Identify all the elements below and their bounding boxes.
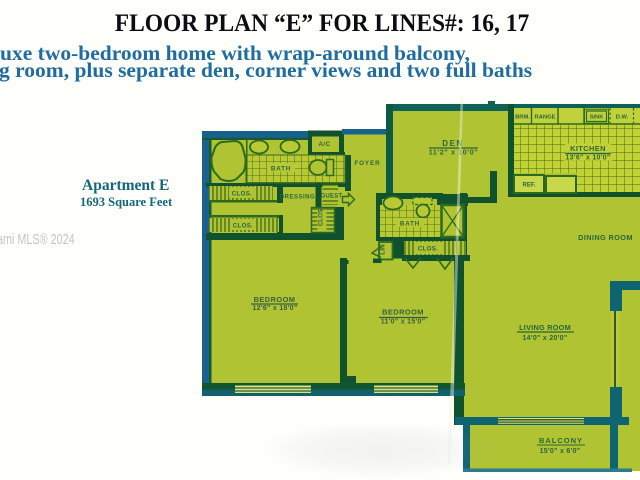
svg-text:13'6" x 10'0": 13'6" x 10'0"	[565, 155, 610, 162]
svg-text:BEDROOM: BEDROOM	[382, 308, 424, 317]
svg-text:A/C: A/C	[318, 141, 330, 148]
svg-text:BEDROOM: BEDROOM	[254, 295, 296, 304]
svg-text:DRESSING: DRESSING	[280, 195, 315, 201]
svg-text:FOYER: FOYER	[354, 160, 380, 167]
svg-text:CLOS.: CLOS.	[233, 223, 253, 230]
svg-text:12'6" x 18'0": 12'6" x 18'0"	[252, 305, 297, 312]
svg-text:REF.: REF.	[522, 183, 535, 189]
svg-text:14'0" x 20'0": 14'0" x 20'0"	[522, 335, 567, 342]
svg-text:CLOS.: CLOS.	[232, 191, 252, 198]
svg-text:BRM.: BRM.	[515, 115, 530, 121]
svg-text:SINK: SINK	[590, 115, 605, 121]
svg-text:KITCHEN: KITCHEN	[570, 144, 606, 153]
svg-text:LIVING ROOM: LIVING ROOM	[519, 323, 571, 332]
svg-text:RANGE: RANGE	[535, 115, 556, 121]
svg-text:DINING ROOM: DINING ROOM	[578, 233, 633, 242]
svg-text:LIN: LIN	[380, 244, 387, 255]
svg-text:15'0" x 6'0": 15'0" x 6'0"	[540, 448, 581, 455]
svg-text:D.W.: D.W.	[616, 115, 629, 121]
svg-text:BATH: BATH	[400, 221, 420, 228]
svg-text:11'0" x 15'0": 11'0" x 15'0"	[381, 319, 426, 326]
svg-text:BATH: BATH	[271, 166, 291, 173]
svg-text:CLOS.: CLOS.	[418, 246, 438, 253]
svg-text:GUEST: GUEST	[321, 193, 343, 199]
svg-text:BALCONY: BALCONY	[539, 436, 583, 445]
svg-text:11'2" x 10'0": 11'2" x 10'0"	[429, 148, 479, 157]
svg-text:CLOS: CLOS	[318, 209, 325, 226]
